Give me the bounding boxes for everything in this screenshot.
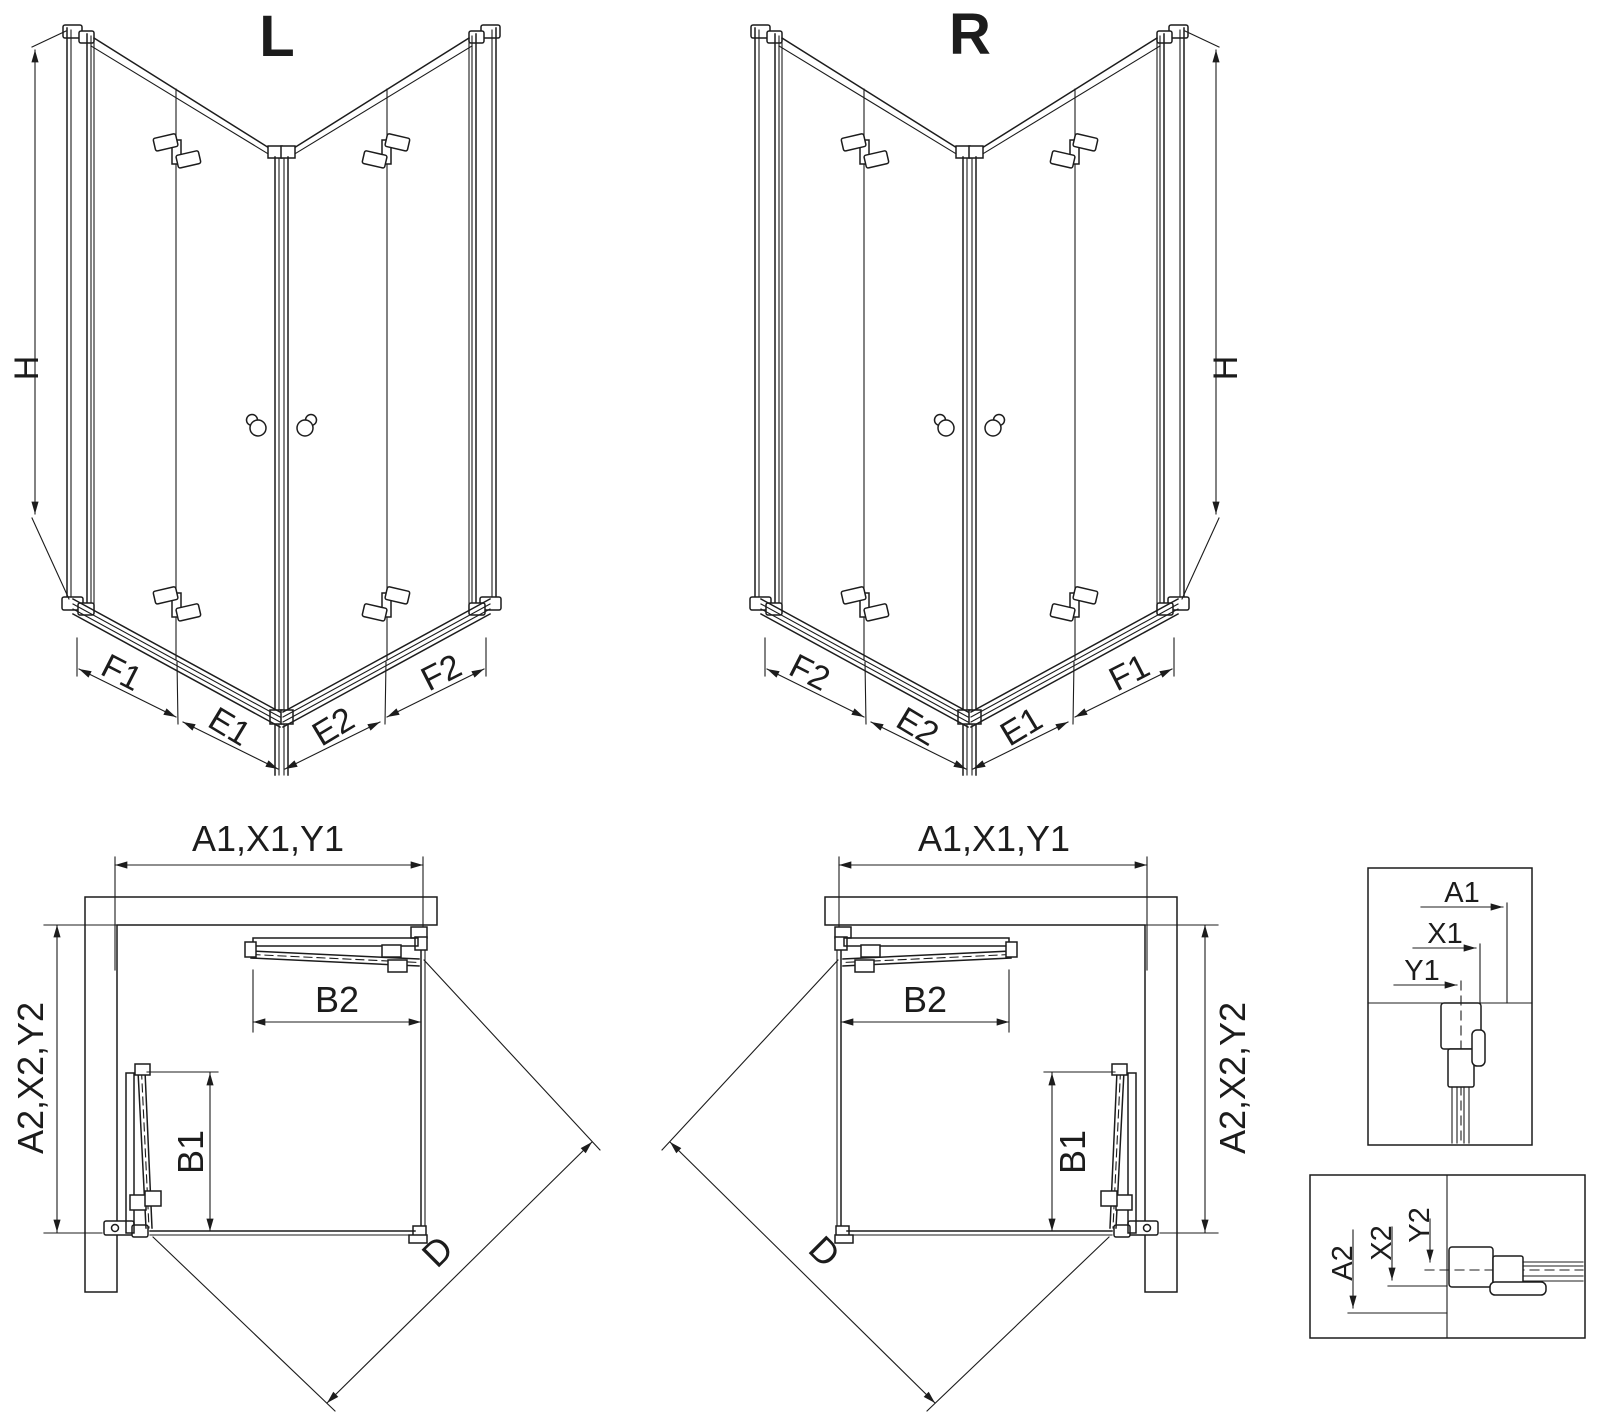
detail-label-a1: A1	[1444, 877, 1479, 909]
detail-label-x2: X2	[1366, 1225, 1398, 1260]
dim-label-b1-plan-r: B1	[1052, 1130, 1093, 1174]
dim-label-f1-r: F1	[1103, 647, 1156, 699]
plan-view-left: A1,X1,Y1 A2,X2,Y2 B2 B1 D	[10, 818, 600, 1411]
dim-label-depth-plan-l: A2,X2,Y2	[10, 1002, 51, 1154]
dim-label-b2-plan-l: B2	[315, 979, 359, 1020]
dim-label-b1-plan-l: B1	[170, 1130, 211, 1174]
front-view-left: L H F1 E1 E2 F2	[8, 4, 501, 775]
plan-view-right: A1,X1,Y1 A2,X2,Y2 B2 B1 D	[662, 818, 1253, 1411]
dim-label-depth-plan-r: A2,X2,Y2	[1212, 1002, 1253, 1154]
dim-label-height-l: H	[8, 356, 46, 381]
dim-label-e1-r: E1	[994, 700, 1049, 754]
detail-view-bottom: A2 X2 Y2	[1310, 1175, 1585, 1338]
dim-label-width-plan-l: A1,X1,Y1	[192, 818, 344, 859]
detail-label-x1: X1	[1427, 918, 1462, 950]
detail-view-top: A1 X1 Y1	[1368, 868, 1532, 1145]
dim-label-e2-r: E2	[890, 700, 945, 754]
detail-label-y1: Y1	[1404, 955, 1439, 987]
detail-label-a2: A2	[1327, 1245, 1359, 1280]
shower-enclosure-technical-drawing: L H F1 E1 E2 F2 R H F2 E2 E1 F1 A1,X1,Y1…	[0, 0, 1600, 1413]
dim-label-e2-l: E2	[306, 700, 361, 754]
dim-label-width-plan-r: A1,X1,Y1	[918, 818, 1070, 859]
front-view-right: R H F2 E2 E1 F1	[750, 2, 1245, 775]
label-variant-l: L	[259, 4, 294, 69]
label-variant-r: R	[949, 2, 991, 67]
dim-label-f1-l: F1	[95, 647, 148, 699]
drawing-page: L H F1 E1 E2 F2 R H F2 E2 E1 F1 A1,X1,Y1…	[0, 0, 1600, 1413]
dim-label-b2-plan-r: B2	[903, 979, 947, 1020]
dim-label-e1-l: E1	[202, 700, 257, 754]
dim-label-height-r: H	[1207, 356, 1245, 381]
detail-label-y2: Y2	[1404, 1207, 1436, 1242]
dim-label-f2-l: F2	[415, 647, 468, 699]
dim-label-f2-r: F2	[783, 647, 836, 699]
